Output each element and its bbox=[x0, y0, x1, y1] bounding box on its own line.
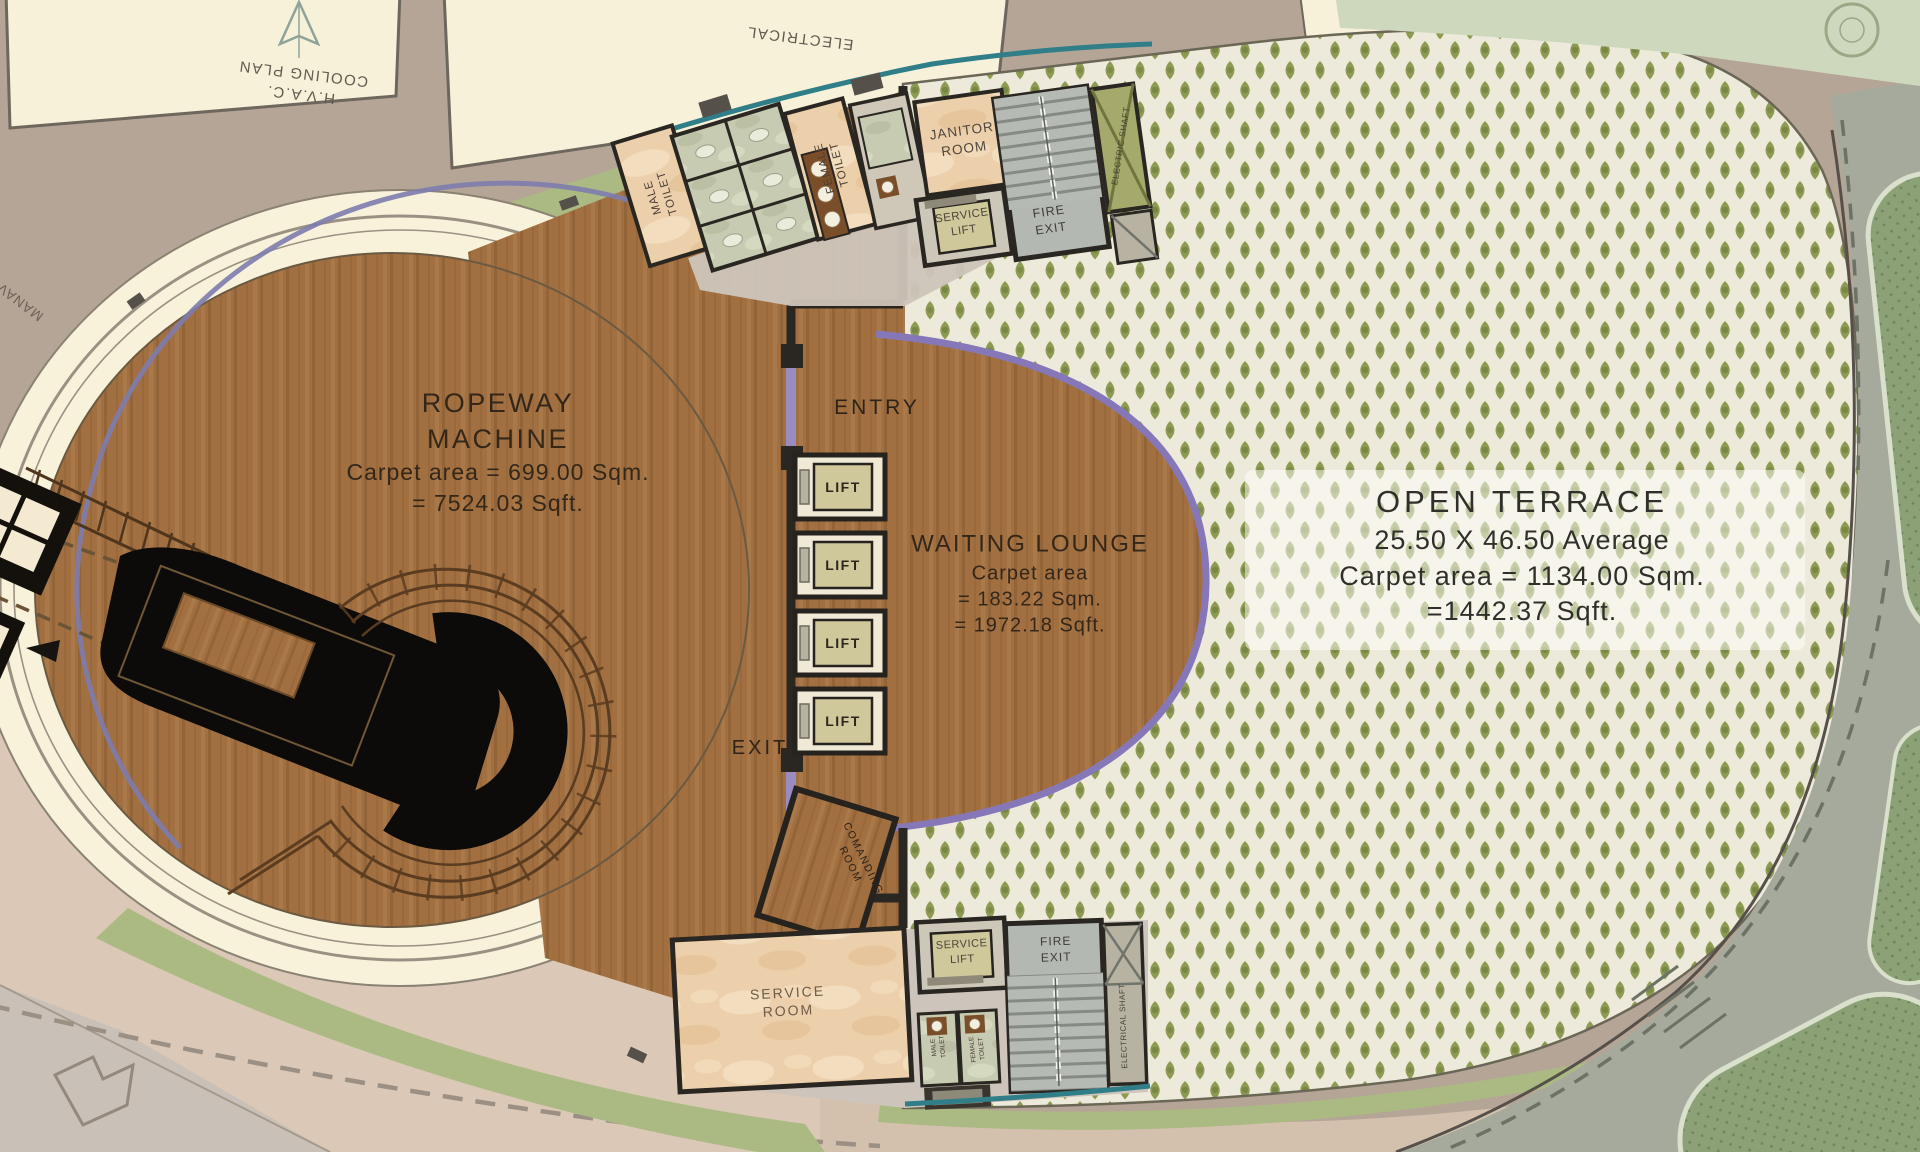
lift-label-2: LIFT bbox=[825, 556, 861, 574]
open-terrace-label: OPEN TERRACE 25.50 X 46.50 Average Carpe… bbox=[1339, 482, 1704, 630]
exit-label: EXIT bbox=[732, 735, 788, 761]
lift-label-1: LIFT bbox=[825, 478, 861, 496]
lift-label-4: LIFT bbox=[825, 712, 861, 730]
fire-exit-top-label: FIRE EXIT bbox=[1032, 201, 1069, 238]
entry-label: ENTRY bbox=[834, 394, 920, 422]
lift-label-3: LIFT bbox=[825, 634, 861, 652]
waiting-lounge-label: WAITING LOUNGE Carpet area = 183.22 Sqm.… bbox=[911, 529, 1149, 640]
female-toilet-small-label: FEMALE TOILET bbox=[968, 1035, 988, 1063]
service-lift-bottom-label: SERVICE LIFT bbox=[935, 936, 988, 968]
service-room-label: SERVICE ROOM bbox=[749, 982, 826, 1023]
small-toilets bbox=[918, 1010, 1001, 1110]
entry-door bbox=[786, 368, 796, 446]
fire-exit-bottom-label: FIRE EXIT bbox=[1040, 934, 1072, 967]
bottom-service-block bbox=[672, 918, 1150, 1110]
male-toilet-small-label: MALE TOILET bbox=[929, 1035, 948, 1059]
floor-plan-canvas: H.V.A.C. COOLING PLAN ELECTRICAL MANAV R… bbox=[0, 0, 1920, 1152]
ropeway-machine-label: ROPEWAY MACHINE Carpet area = 699.00 Sqm… bbox=[346, 386, 649, 518]
